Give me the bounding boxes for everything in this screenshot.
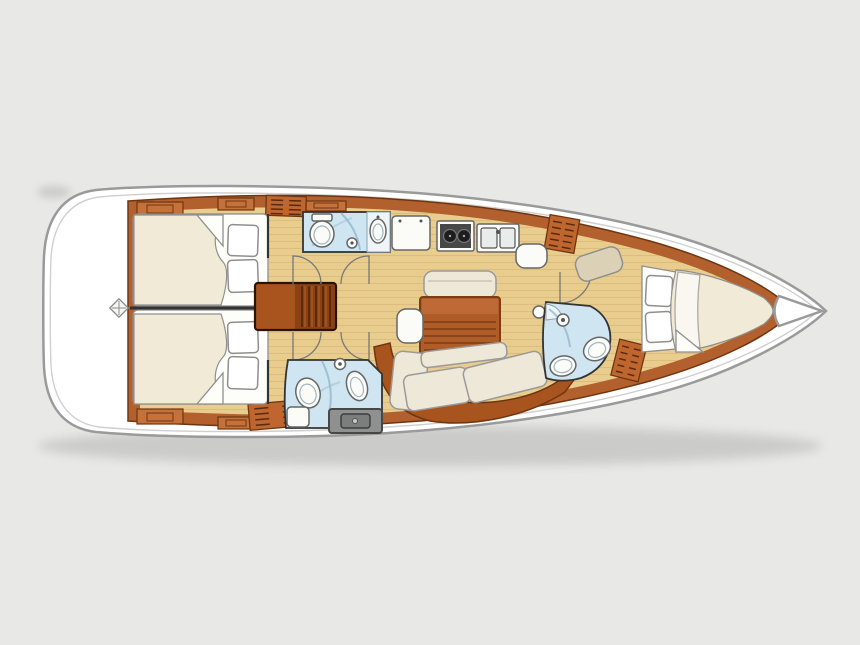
boat-floorplan: Top-down interior layout plan of a saili… bbox=[0, 0, 860, 645]
fridge-counter bbox=[392, 216, 430, 250]
sink-basin bbox=[481, 228, 497, 248]
shelf-cushion bbox=[645, 311, 673, 342]
table-leaf bbox=[422, 299, 498, 314]
shower-head-dot bbox=[350, 241, 353, 244]
louvered-locker-nav bbox=[544, 215, 579, 254]
steps-landing bbox=[256, 284, 295, 329]
companionway-steps bbox=[255, 283, 336, 330]
burner-dot bbox=[449, 235, 451, 237]
head-bottom bbox=[285, 359, 382, 434]
burner-dot bbox=[463, 235, 465, 237]
mast-post bbox=[533, 306, 545, 318]
counter-latch bbox=[399, 220, 402, 223]
hull-shadow-smudge bbox=[37, 186, 71, 198]
counter-latch bbox=[420, 220, 423, 223]
shower-head-dot bbox=[338, 362, 342, 366]
shower-head-dot bbox=[561, 318, 565, 322]
faucet-dot bbox=[377, 216, 380, 219]
louvered-locker-top-center bbox=[266, 195, 307, 216]
pillow bbox=[227, 224, 258, 256]
storage-box bbox=[287, 407, 309, 427]
faucet-dot bbox=[496, 230, 500, 234]
aft-cabin-top bbox=[133, 214, 268, 306]
head-top bbox=[303, 212, 390, 252]
counter-end bbox=[516, 244, 547, 268]
shelf-cushion bbox=[645, 275, 673, 306]
sink-basin bbox=[500, 228, 515, 248]
aft-cabin-bottom bbox=[133, 310, 268, 404]
cabinet-drawer bbox=[137, 409, 183, 424]
floorplan-stage: Top-down interior layout plan of a saili… bbox=[0, 0, 860, 645]
bench-seat bbox=[424, 271, 496, 298]
stool bbox=[397, 309, 423, 343]
pillow bbox=[227, 259, 258, 292]
engine-hatch-knob bbox=[353, 419, 358, 424]
cabinet-drawer bbox=[218, 198, 254, 210]
pillow bbox=[227, 356, 258, 389]
pillow bbox=[227, 321, 258, 353]
toilet-tank bbox=[312, 214, 332, 221]
